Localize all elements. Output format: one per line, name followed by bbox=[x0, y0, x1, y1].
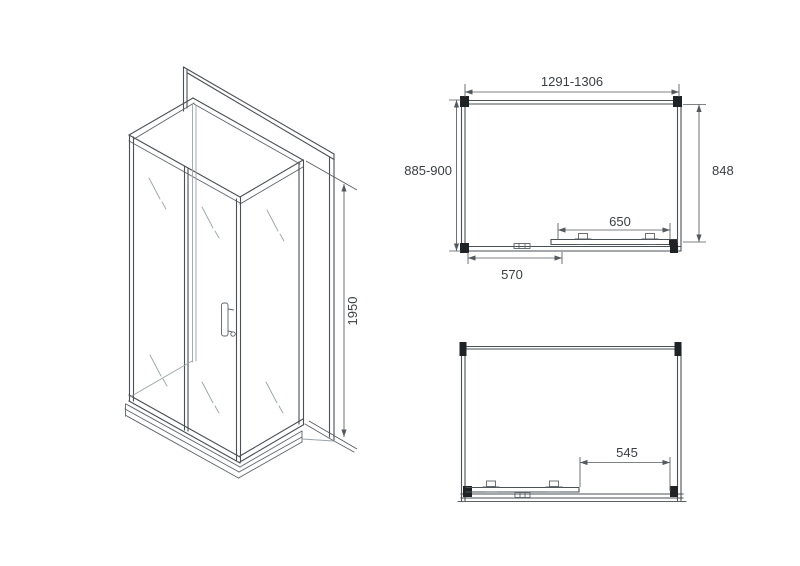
base-tray bbox=[125, 404, 334, 478]
width-dimension-label: 1291-1306 bbox=[541, 74, 603, 89]
door-width-dimension: 650 bbox=[558, 214, 670, 240]
glass-shine-marks bbox=[149, 178, 284, 413]
door-width-dimension-label: 650 bbox=[609, 214, 631, 229]
panel-width-dimension-label: 570 bbox=[501, 267, 523, 282]
door-handle bbox=[222, 303, 236, 336]
sliding-door-assembly-2 bbox=[466, 481, 579, 498]
opening-dimension-label: 545 bbox=[616, 445, 638, 460]
top-plan-view: 1291-1306 885-900 848 650 570 bbox=[404, 74, 733, 282]
width-dimension: 1291-1306 bbox=[465, 74, 679, 97]
front-plan-view: 545 bbox=[458, 342, 686, 502]
shower-enclosure-drawing: 1950 bbox=[0, 0, 800, 566]
back-wall-panel bbox=[184, 67, 355, 452]
plan-walls-2 bbox=[458, 342, 686, 502]
height-dimension-label: 1950 bbox=[345, 297, 360, 326]
inner-depth-dimension-label: 848 bbox=[712, 163, 734, 178]
panel-width-dimension: 570 bbox=[468, 252, 562, 282]
inner-depth-dimension: 848 bbox=[683, 105, 734, 243]
isometric-view: 1950 bbox=[125, 67, 360, 478]
height-dimension: 1950 bbox=[306, 161, 360, 449]
depth-dimension: 885-900 bbox=[404, 100, 461, 251]
depth-dimension-label: 885-900 bbox=[404, 163, 452, 178]
frame-bottom-rails bbox=[129, 361, 303, 463]
technical-drawing-sheet: 1950 bbox=[0, 0, 800, 566]
opening-dimension: 545 bbox=[580, 445, 670, 491]
plan-walls bbox=[460, 96, 682, 253]
frame-top-rim bbox=[129, 98, 303, 204]
